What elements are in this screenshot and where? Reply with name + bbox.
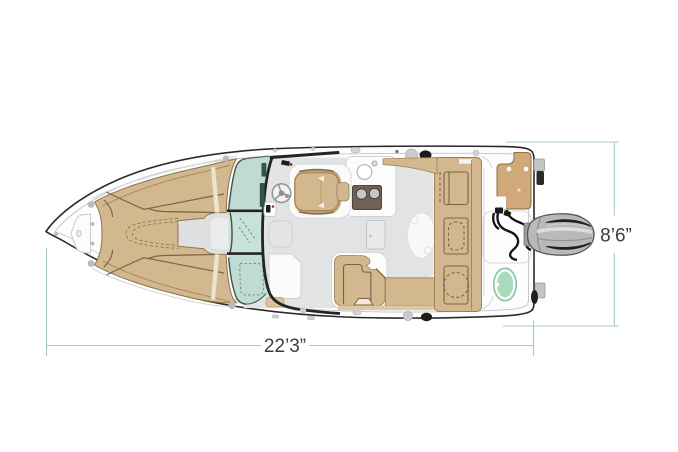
- svg-text:22’3”: 22’3”: [264, 336, 306, 357]
- svg-text:8’6”: 8’6”: [600, 226, 632, 247]
